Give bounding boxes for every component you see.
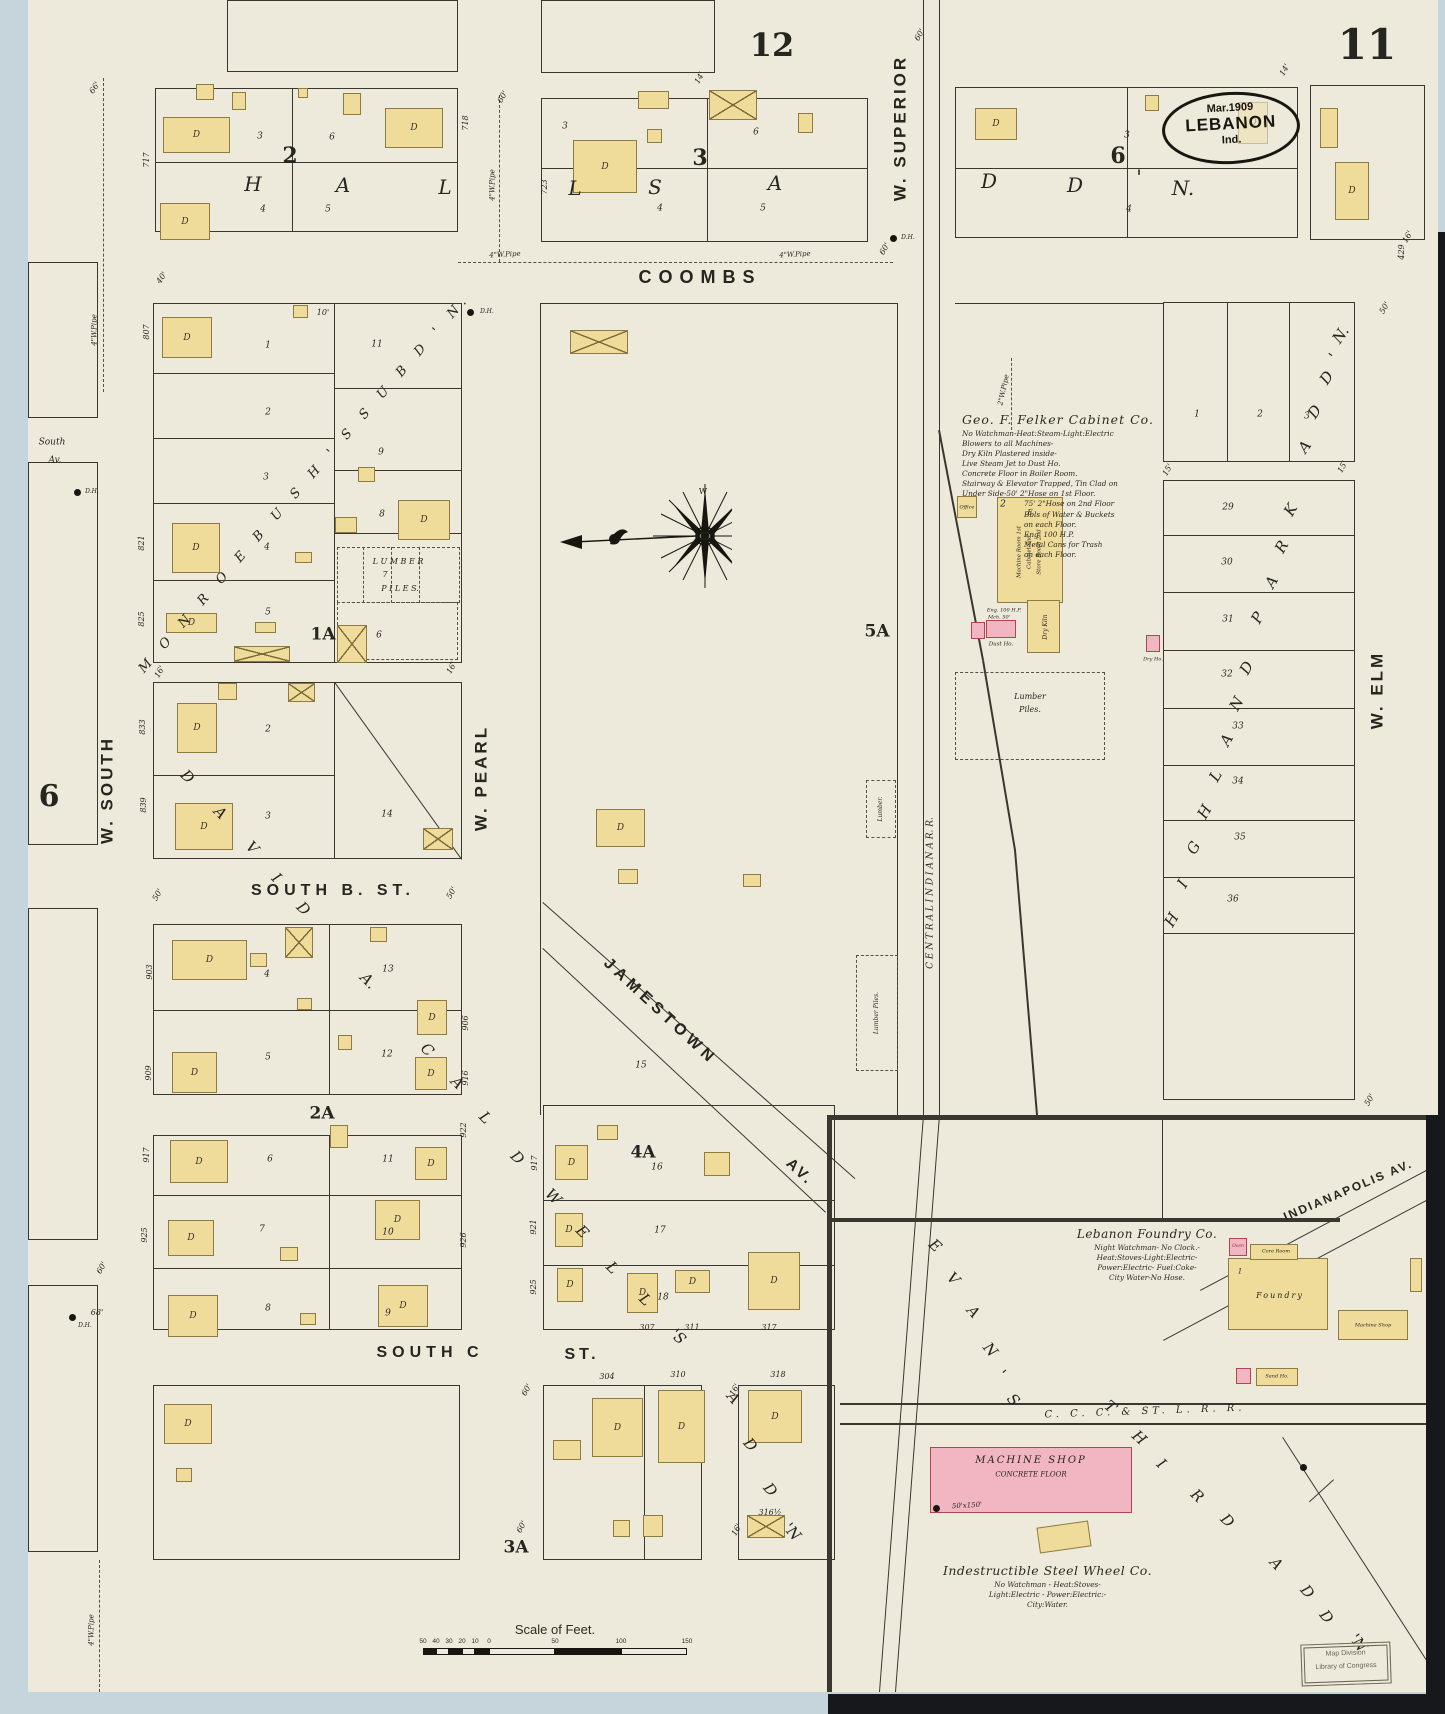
subdivision-letter: D (981, 171, 997, 191)
lin (543, 1200, 835, 1201)
lot-number: 17 (654, 1227, 665, 1236)
house-number: 921 (530, 1219, 538, 1234)
lot-number: 32 (1221, 671, 1232, 680)
dry-house-label: Dry Ho. (1143, 658, 1163, 663)
crossed-building (747, 1515, 785, 1538)
bld (613, 1520, 630, 1537)
block-outline (227, 0, 458, 72)
margin-block (28, 908, 98, 1240)
lin (335, 388, 462, 389)
hydrant-label: D.H. (78, 1323, 92, 1329)
dwelling: D (748, 1252, 800, 1310)
dwelling: D (1335, 162, 1369, 220)
bld (638, 91, 669, 109)
house-number: 917 (143, 1147, 151, 1162)
foundry-notes: Night Watchman- No Clock.-Heat:Stoves-Li… (1058, 1243, 1236, 1283)
house-number: 310 (670, 1371, 685, 1379)
pbd (1236, 1368, 1251, 1384)
lot-number: 5 (760, 205, 766, 214)
scan-margin-left (0, 0, 28, 1714)
water-pipe-label: 4"W.Pipe (490, 169, 497, 200)
lot-number: 9 (385, 1310, 391, 1319)
lumber-piles-label: Lumber. (878, 796, 884, 821)
lot-number: 7 (259, 1226, 265, 1235)
lot-number: 5 (325, 206, 331, 215)
hydrant-label: D.H. (480, 309, 494, 315)
bld (1320, 108, 1338, 148)
note-line: Power:Electric- Fuel:Coke- (1058, 1263, 1236, 1273)
note-line: Eng. 100 H.P. (1024, 530, 1177, 540)
lot-number: 2 (265, 726, 271, 735)
lot-number: 15 (635, 1062, 646, 1071)
foundry-lot: 1 (1238, 1269, 1242, 1276)
lot-number: 10 (382, 1229, 393, 1238)
lot-number: 2 (265, 409, 271, 418)
note-line: Light:Electric - Power:Electric:- (935, 1590, 1160, 1600)
lin (334, 303, 335, 663)
lumber-piles-label: 7 (382, 571, 387, 579)
lot-number: 36 (1227, 896, 1238, 905)
house-number: 903 (146, 964, 154, 979)
scale-bar: Scale of Feet. 5040302010050100150 (410, 1618, 710, 1668)
heavy-property-line (832, 1218, 1340, 1222)
lot-number: 30 (1221, 559, 1232, 568)
dwelling: D (168, 1295, 218, 1337)
lin (1127, 87, 1128, 238)
building-label: D (187, 1233, 194, 1243)
wheel-notes: No Watchman - Heat:Stoves-Light:Electric… (935, 1580, 1160, 1610)
note-line: Under Side-50' 2"Hose on 1st Floor. (962, 489, 1177, 499)
felker-dry-kiln-label: Dry Kiln (1043, 614, 1049, 639)
note-line: Bbls of Water & Buckets (1024, 510, 1177, 520)
dwelling: D (385, 108, 443, 148)
block-outline (541, 0, 715, 73)
bld (343, 93, 361, 115)
building-label: D (427, 1159, 434, 1169)
building-label: D (206, 955, 213, 965)
north-arrow-dot (1300, 1464, 1307, 1471)
lumber-piles-label: Lumber (1014, 693, 1046, 701)
water-pipe (458, 262, 893, 263)
hydrant-label: D.H. (901, 235, 915, 241)
building-label: D (410, 123, 417, 133)
house-number: 917 (531, 1155, 539, 1170)
core-room-label: Core Room (1262, 1250, 1290, 1255)
subdivision-letter: A (768, 173, 782, 193)
lot-number: 16 (651, 1164, 662, 1173)
lumber-piles-label: Lumber Piles. (874, 992, 880, 1034)
lot-number: 12 (381, 1051, 392, 1060)
street-south-b: SOUTH B. ST. (251, 883, 415, 899)
building-label: D (181, 217, 188, 227)
scale-title: Scale of Feet. (515, 1622, 595, 1637)
street-w-elm: W. ELM (1369, 651, 1386, 729)
felker-dust-house-label: Dust Ho. (989, 642, 1014, 648)
house-number: 839 (140, 797, 148, 812)
scale-tick: 50 (551, 1638, 558, 1645)
subdivision-letter: L (438, 177, 451, 197)
lot-number: 6 (329, 134, 335, 143)
block-number: 3 (692, 147, 707, 169)
felker-cabinet-co: Geo. F. Felker Cabinet Co. No Watchman-H… (962, 412, 1177, 560)
felker-engine-label: Eng. 100 H.P. (987, 609, 1021, 614)
house-number: 909 (145, 1065, 153, 1080)
dwelling: D (596, 809, 645, 847)
scale-tick: 0 (487, 1638, 491, 1645)
machine-shop-label: CONCRETE FLOOR (995, 1472, 1066, 1479)
lin (153, 503, 335, 504)
bld (358, 467, 375, 482)
lot-number: 11 (382, 1156, 393, 1165)
bld (798, 113, 813, 133)
inset-border-right (1426, 1115, 1440, 1694)
block-number: 5A (864, 624, 889, 641)
lot-number: 6 (376, 632, 382, 641)
building-label: D (601, 162, 608, 172)
railroad-rail (923, 0, 924, 1115)
scan-margin-right (1438, 0, 1445, 232)
lot-number: 8 (265, 1305, 271, 1314)
house-number: 916 (462, 1070, 470, 1085)
building-label: D (566, 1280, 573, 1290)
street-w-south: W. SOUTH (99, 736, 116, 844)
lin (153, 438, 335, 439)
lot-number: 3 (562, 123, 568, 132)
bld (553, 1440, 581, 1460)
block-number: 2A (309, 1106, 334, 1123)
dwelling: D (172, 1052, 217, 1093)
crossed-building (570, 330, 628, 354)
dwelling: D (675, 1270, 710, 1293)
house-number: 906 (462, 1015, 470, 1030)
bld (743, 874, 761, 887)
note-line: Stairway & Elevator Trapped, Tin Clad on (962, 479, 1177, 489)
foundry-label: Foundry (1256, 1292, 1304, 1300)
double-hydrant (890, 235, 897, 242)
lot-number: 18 (657, 1294, 668, 1303)
building-label: D (399, 1301, 406, 1311)
house-number: 304 (599, 1373, 614, 1381)
scale-tick: 30 (445, 1638, 452, 1645)
bld (196, 84, 214, 100)
note-line: Heat:Stoves-Light:Electric- (1058, 1253, 1236, 1263)
double-hydrant (74, 489, 81, 496)
lot-number: 14 (381, 811, 392, 820)
lot-number: 34 (1232, 778, 1243, 787)
felker-engine-label: Mch. 50' (988, 616, 1010, 621)
lin (1163, 933, 1355, 934)
bld (232, 92, 246, 110)
lot-number: 31 (1222, 616, 1233, 625)
dimension-label: 10' (317, 309, 329, 317)
dwelling: D (378, 1285, 428, 1327)
lebanon-foundry-co: Lebanon Foundry Co. Night Watchman- No C… (1058, 1227, 1236, 1283)
compass-rose-icon (552, 476, 732, 601)
indestructible-steel-wheel-co: Indestructible Steel Wheel Co. No Watchm… (935, 1563, 1160, 1610)
scale-tick: 40 (432, 1638, 439, 1645)
building-label: D (195, 1157, 202, 1167)
sand-house-label: Sand Ho. (1265, 1375, 1288, 1380)
bld (330, 1125, 348, 1148)
ccc-railroad-rail (840, 1423, 1445, 1425)
lot-number: 3 (263, 474, 269, 483)
scale-tick: 20 (458, 1638, 465, 1645)
bld (704, 1152, 730, 1176)
scale-segment (621, 1648, 687, 1655)
block-number: 6 (39, 782, 60, 812)
crossed-building (285, 927, 313, 958)
subdivision-letter: N. (1172, 178, 1195, 198)
building-label: D (770, 1276, 777, 1286)
lot-number: 13 (382, 966, 393, 975)
house-number: 311 (684, 1324, 699, 1332)
sanborn-map-sheet: 1112DDDDDDDDDDDDDDDDDDDDDDDDDDDDDDDDDDCO… (0, 0, 1445, 1714)
bottom-black-bar (828, 1694, 1445, 1714)
lc-stamp-line2: Library of Congress (1302, 1661, 1390, 1671)
felker-title: Geo. F. Felker Cabinet Co. (962, 412, 1177, 427)
building-label: D (771, 1412, 778, 1422)
bld (597, 1125, 618, 1140)
house-number: 925 (530, 1279, 538, 1294)
block-5a (540, 303, 898, 1115)
building-label: D (193, 723, 200, 733)
bld (1145, 95, 1159, 111)
machine-shop-small-label: Machine Shop (1355, 1324, 1391, 1329)
lot-number: 4 (264, 544, 270, 553)
felker-boiler (986, 620, 1016, 638)
bld (293, 305, 308, 318)
lin (1163, 650, 1355, 651)
water-pipe (103, 78, 104, 392)
library-of-congress-stamp: Map Division Library of Congress (1300, 1641, 1391, 1686)
lin (1163, 820, 1355, 821)
railroad-central-indiana: C E N T R A L I N D I A N A R. R. (927, 817, 936, 969)
building-label: D (689, 1277, 696, 1287)
building-label: D (428, 1013, 435, 1023)
lot-number: 35 (1234, 834, 1245, 843)
building-label: D (183, 333, 190, 343)
building-label: D (992, 119, 999, 129)
hydrant-label: D.H. (85, 489, 99, 495)
lot-number: 33 (1232, 723, 1243, 732)
lin (1163, 877, 1355, 878)
house-number: 821 (138, 535, 146, 550)
crossed-building (234, 646, 290, 662)
lin (955, 303, 1163, 304)
inset-border (832, 1115, 1440, 1120)
bld (335, 517, 357, 533)
dwelling: D (658, 1390, 705, 1463)
house-number: 318 (770, 1371, 785, 1379)
note-line: City Water-No Hose. (1058, 1273, 1236, 1283)
lin (955, 168, 1298, 169)
lot-number: 4 (657, 205, 663, 214)
lin (335, 470, 462, 471)
building-label: D (420, 515, 427, 525)
street-w-superior: W. SUPERIOR (892, 55, 909, 201)
bld (250, 953, 267, 967)
adjacent-sheet-number: 12 (750, 29, 795, 61)
dwelling: D (415, 1057, 447, 1090)
lin (153, 1268, 462, 1269)
bld (618, 869, 638, 884)
block-highland-column (1163, 480, 1355, 1100)
bld (298, 88, 308, 98)
bld (300, 1313, 316, 1325)
bld (280, 1247, 298, 1261)
subdivision-letter: ' (1136, 167, 1142, 187)
house-number: 429 (1398, 244, 1406, 259)
foundry-title: Lebanon Foundry Co. (1058, 1227, 1236, 1241)
scale-segment (489, 1648, 555, 1655)
lumber-piles-area (337, 547, 460, 603)
water-pipe-label: 4"W.Pipe (89, 1614, 96, 1645)
lin (419, 547, 420, 603)
block-number: 3A (503, 1540, 528, 1557)
dwelling: D (164, 1404, 212, 1444)
note-line: Live Steam Jet to Dust Ho. (962, 459, 1177, 469)
lot-number: 4 (1126, 206, 1132, 215)
lin (1163, 765, 1355, 766)
dry-house (1146, 635, 1160, 652)
scale-segment (475, 1648, 489, 1655)
lot-number: 5 (265, 1054, 271, 1063)
building-label: D (200, 822, 207, 832)
dwelling: D (975, 108, 1017, 140)
dwelling: D (555, 1145, 588, 1180)
lot-number: 11 (371, 341, 382, 350)
lot-number: 3 (257, 133, 263, 142)
water-pipe (99, 1560, 100, 1692)
house-number: 717 (143, 152, 151, 167)
lumber-piles-area (955, 672, 1105, 760)
building-label: D (678, 1422, 685, 1432)
scale-tick: 10 (471, 1638, 478, 1645)
note-line: Metal Cans for Trash (1024, 540, 1177, 550)
building-label: D (189, 1311, 196, 1321)
note-line: City:Water. (935, 1600, 1160, 1610)
bld (297, 998, 312, 1010)
building-label: D (427, 1069, 434, 1079)
dwelling: D (170, 1140, 228, 1183)
dwelling: D (162, 317, 212, 358)
street-coombs: COOMBS (639, 268, 762, 286)
street-south-av: Av. (48, 457, 61, 466)
scale-segment (436, 1648, 449, 1655)
lc-stamp-line1: Map Division (1302, 1648, 1390, 1658)
margin-block (28, 262, 98, 418)
dwelling: D (163, 117, 230, 153)
note-line: 75' 2"Hose on 2nd Floor (1024, 499, 1177, 509)
dwelling: D (398, 500, 450, 540)
lin (155, 162, 458, 163)
building-label: D (1348, 186, 1355, 196)
subdivision-letter: S (648, 177, 662, 197)
house-number: 307 (639, 1324, 654, 1332)
dwelling: D (573, 140, 637, 193)
double-hydrant (467, 309, 474, 316)
bld (643, 1515, 663, 1537)
house-number: 925 (141, 1227, 149, 1242)
lot-number: 3 (265, 813, 271, 822)
note-line: Concrete Floor in Boiler Room. (962, 469, 1177, 479)
house-number: 317 (761, 1324, 776, 1332)
machine-shop-label: MACHINE SHOP (975, 1456, 1087, 1466)
lot-number: 5 (265, 609, 271, 618)
crossed-building (288, 683, 315, 702)
bld (1410, 1258, 1422, 1292)
house-number: 825 (138, 611, 146, 626)
subdivision-letter: D (1067, 175, 1083, 195)
note-line: on each Floor. (1024, 550, 1177, 560)
dwelling: D (172, 940, 247, 980)
lin (153, 1195, 462, 1196)
dwelling: D (177, 703, 217, 753)
dwelling: D (172, 523, 220, 573)
house-number: 926 (460, 1232, 468, 1247)
dwelling: D (592, 1398, 643, 1457)
bld (218, 683, 237, 700)
lot-number: 2 (1257, 411, 1263, 420)
lin (153, 1010, 462, 1011)
dimension-label: 68' (91, 1309, 103, 1317)
bld (338, 1035, 352, 1050)
lot-number: 1 (265, 342, 271, 351)
street-w-pearl: W. PEARL (473, 725, 490, 831)
house-number: 807 (143, 324, 151, 339)
ccc-railroad-rail (840, 1403, 1445, 1405)
scale-segment (555, 1648, 621, 1655)
lot-number: 6 (753, 129, 759, 138)
building-label: D (394, 1215, 401, 1225)
bld (255, 622, 276, 633)
bld (370, 927, 387, 942)
lin (1163, 535, 1355, 536)
block-number: 2 (282, 145, 297, 167)
building-label: D (617, 823, 624, 833)
note-line: No Watchman - Heat:Stoves- (935, 1580, 1160, 1590)
block-number: 4A (630, 1145, 655, 1162)
building-label: D (193, 130, 200, 140)
lot-number: 9 (378, 449, 384, 458)
lot-number: 3 (1124, 132, 1130, 141)
lumber-piles-label: L U M B E R (373, 558, 424, 566)
lot-number: 1 (1194, 411, 1200, 420)
dwelling: D (160, 203, 210, 240)
double-hydrant (69, 1314, 76, 1321)
dwelling: D (168, 1220, 214, 1256)
dwelling: D (415, 1147, 447, 1180)
note-line: Blowers to all Machines- (962, 439, 1177, 449)
water-pipe-label: 4"W.Pipe (92, 314, 99, 345)
street-south-av: South (39, 439, 66, 448)
lot-number: 4 (260, 206, 266, 215)
lin (334, 682, 335, 859)
sheet-number: 11 (1338, 24, 1396, 66)
house-number: 316½ (758, 1509, 781, 1517)
lot-number: 4 (264, 971, 270, 980)
lin (329, 1135, 330, 1330)
house-number: 833 (139, 719, 147, 734)
house-number: 922 (460, 1122, 468, 1137)
scale-tick: 150 (682, 1638, 693, 1645)
scale-tick: 50 (419, 1638, 426, 1645)
scale-segment (462, 1648, 475, 1655)
crossed-building (709, 90, 757, 120)
note-line: No Watchman-Heat:Steam-Light:Electric (962, 429, 1177, 439)
block-number: 6 (1110, 145, 1125, 167)
subdivision-letter: A (336, 175, 350, 195)
